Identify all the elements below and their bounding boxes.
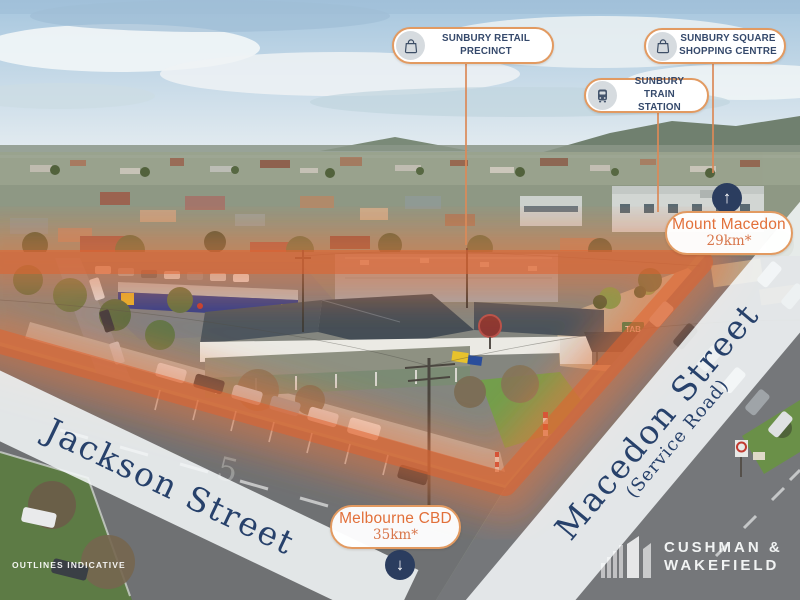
cushman-wakefield-logo: CUSHMAN & WAKEFIELD <box>601 536 783 578</box>
far-suburb <box>0 152 800 190</box>
aerial-marketing-image: TAB <box>0 0 800 600</box>
callout-sunbury-square-shopping-centre: SUNBURY SQUARE SHOPPING CENTRE <box>644 28 786 64</box>
callout-line-train <box>657 112 659 212</box>
callout-label: SUNBURY RETAIL PRECINCT <box>425 33 550 58</box>
shopping-bag-icon <box>396 31 425 60</box>
callout-label: SUNBURY TRAIN STATION <box>617 76 705 114</box>
melbourne-cbd-distance: 35km* <box>332 528 459 544</box>
callout-sunbury-train-station: SUNBURY TRAIN STATION <box>584 78 709 113</box>
shopping-bag-icon <box>648 32 677 61</box>
train-icon <box>588 81 617 110</box>
arrow-up-glyph: ↑ <box>723 188 732 208</box>
mount-macedon-distance: 29km* <box>667 234 791 250</box>
distance-pill-mount-macedon: Mount Macedon 29km* <box>665 211 793 255</box>
callout-line-retail <box>465 63 467 245</box>
melbourne-cbd-label: Melbourne CBD <box>332 510 459 528</box>
outlines-indicative-disclaimer: OUTLINES INDICATIVE <box>12 560 126 570</box>
arrow-down-glyph: ↓ <box>396 555 405 575</box>
callout-sunbury-retail-precinct: SUNBURY RETAIL PRECINCT <box>392 27 554 64</box>
distance-pill-melbourne-cbd: Melbourne CBD 35km* <box>330 505 461 549</box>
mount-macedon-label: Mount Macedon <box>667 216 791 234</box>
cushman-wakefield-mark-icon <box>601 536 655 578</box>
callout-line-square <box>712 63 714 173</box>
arrow-up-icon: ↑ <box>712 183 742 213</box>
cushman-wakefield-wordmark: CUSHMAN & WAKEFIELD <box>664 539 783 575</box>
callout-label: SUNBURY SQUARE SHOPPING CENTRE <box>677 33 782 58</box>
arrow-down-icon: ↓ <box>385 550 415 580</box>
